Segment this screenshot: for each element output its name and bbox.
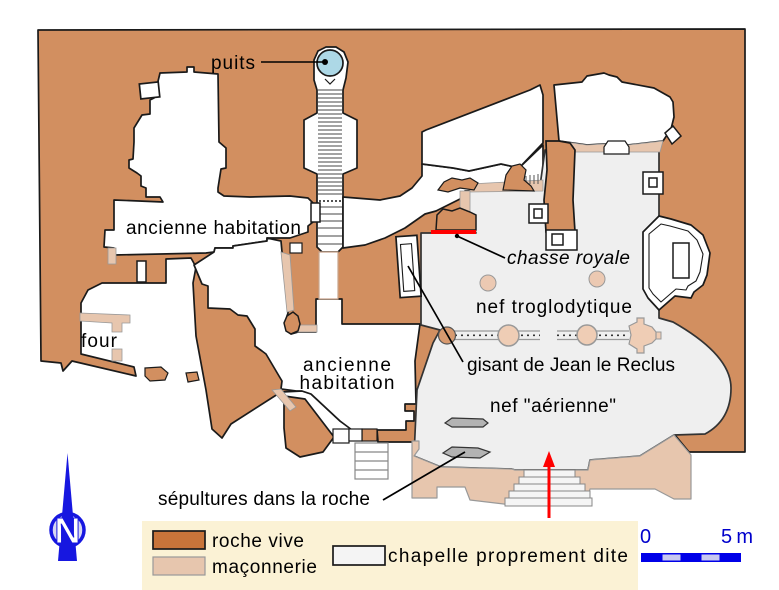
- svg-text:gisant de Jean le Reclus: gisant de Jean le Reclus: [467, 355, 675, 376]
- svg-text:nef "aérienne": nef "aérienne": [490, 396, 616, 417]
- svg-text:habitation: habitation: [300, 373, 395, 394]
- svg-text:0: 0: [640, 526, 651, 548]
- svg-text:5 m: 5 m: [721, 526, 753, 548]
- svg-text:sépultures dans la roche: sépultures dans la roche: [158, 489, 370, 510]
- svg-text:nef troglodytique: nef troglodytique: [476, 297, 632, 318]
- svg-text:chasse royale: chasse royale: [507, 248, 630, 269]
- svg-text:roche vive: roche vive: [212, 531, 304, 552]
- svg-text:four: four: [81, 331, 118, 352]
- svg-text:N: N: [55, 510, 81, 551]
- svg-text:ancienne habitation: ancienne habitation: [126, 218, 301, 239]
- svg-text:puits: puits: [211, 53, 255, 74]
- svg-text:maçonnerie: maçonnerie: [212, 557, 317, 578]
